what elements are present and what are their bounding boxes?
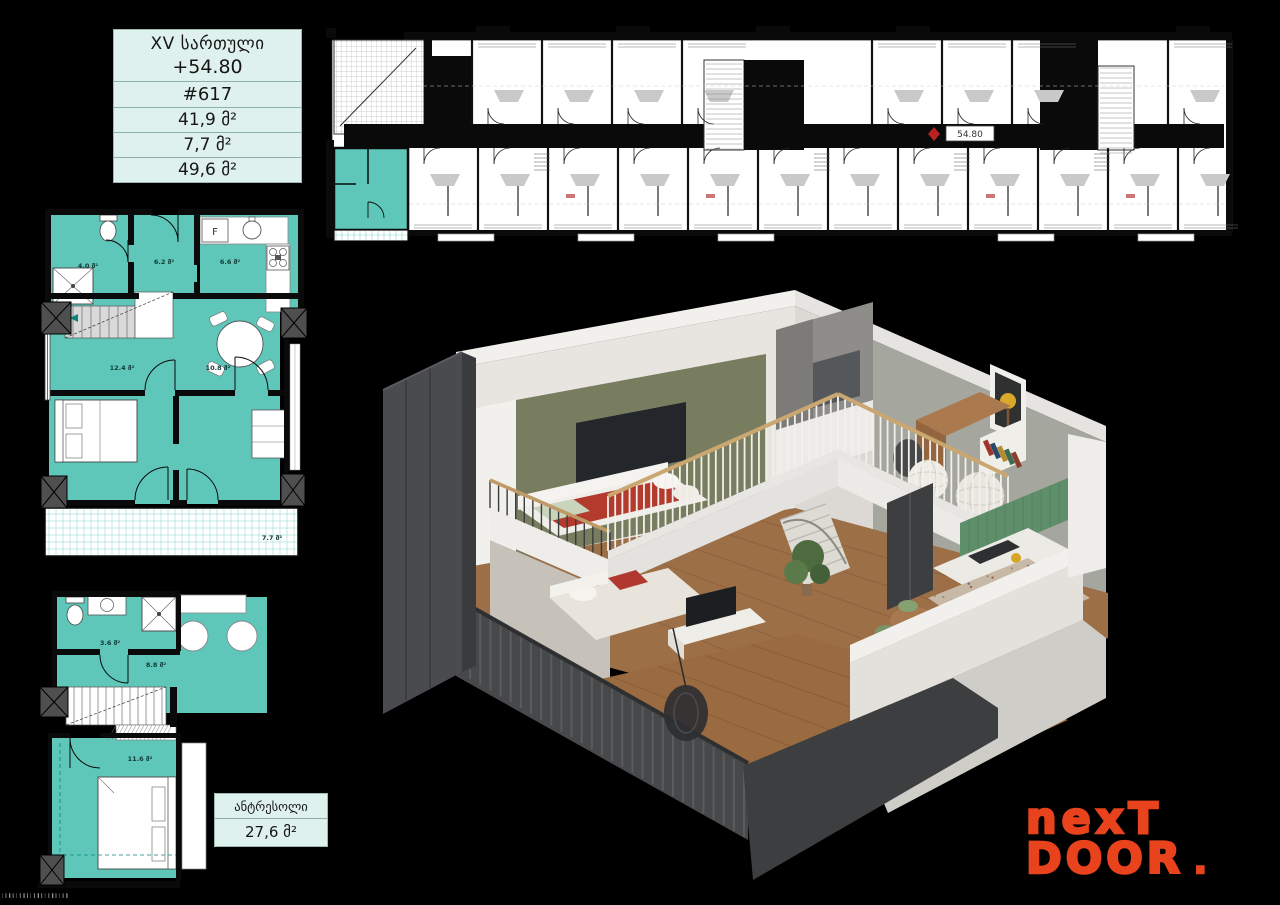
mezzanine-title: ანტრესოლი <box>215 794 327 818</box>
balcony-area: 7,7 მ² <box>114 132 301 157</box>
strip-elevation-label: 54.80 <box>957 130 983 140</box>
logo-dot: . <box>1194 842 1211 882</box>
stairwell-center <box>704 60 804 150</box>
mezzanine-label-table: ანტრესოლი 27,6 მ² <box>214 793 328 847</box>
sofa-icon <box>252 410 286 458</box>
brochure-page: XV სართული +54.80 #617 41,9 მ² 7,7 მ² 49… <box>0 0 1280 905</box>
elevation-value: +54.80 <box>114 56 301 78</box>
mezz-vanity <box>88 595 126 615</box>
living-area: 41,9 მ² <box>114 107 301 132</box>
mezz-shower-icon <box>142 597 176 631</box>
mezz-toilet-icon <box>66 597 84 625</box>
apartment-info-table: XV სართული +54.80 #617 41,9 მ² 7,7 მ² 49… <box>113 29 302 183</box>
bed-icon <box>55 400 137 462</box>
mezzanine-area: 27,6 მ² <box>215 818 327 846</box>
apartment-number: #617 <box>114 81 301 107</box>
pouf-left <box>178 621 208 651</box>
sink-icon <box>243 221 261 239</box>
kitchen-area-label: 6.6 მ² <box>220 258 240 266</box>
bathroom-area-label: 4.0 მ² <box>78 262 98 270</box>
mezz-stairs <box>66 687 166 725</box>
unit-floor-plan: F <box>40 204 312 564</box>
apartment-3d-render <box>368 268 1113 886</box>
balcony: 7.7 მ² <box>45 508 298 556</box>
living-area-label: 10.8 მ² <box>206 364 231 372</box>
mezz-counter <box>180 595 246 613</box>
fridge-label: F <box>212 227 218 238</box>
logo-line1: nexT <box>1026 799 1226 839</box>
bedroom-area-label: 12.4 მ² <box>110 364 135 372</box>
hall-area-label: 6.2 მ² <box>154 258 174 266</box>
total-area: 49,6 მ² <box>114 157 301 182</box>
mezz-bathroom-area-label: 3.6 მ² <box>100 639 120 647</box>
fineprint: ▏▎▍▎▏▎▍▎▏▎▍▎▏▎▍▎▏▎▍ <box>2 893 70 898</box>
stove-icon <box>267 246 289 270</box>
mezz-bedroom-area-label: 11.6 მ² <box>128 755 153 763</box>
building-floor-plan: 54.80 <box>326 26 1238 244</box>
left-charcoal-wall <box>383 352 476 714</box>
floor-elevation-cell: XV სართული +54.80 <box>114 30 301 81</box>
mezz-hall-area-label: 8.8 მ² <box>146 661 166 669</box>
mezz-wardrobe <box>182 743 206 869</box>
floor-label: XV სართული <box>114 34 301 54</box>
balcony-area-label: 7.7 მ² <box>262 534 282 542</box>
pouf-right <box>227 621 257 651</box>
highlighted-unit <box>334 148 408 241</box>
logo-line2: DOOR <box>1026 839 1184 879</box>
nextdoor-logo: nexT DOOR . <box>1026 799 1226 882</box>
toilet-icon <box>100 215 117 241</box>
